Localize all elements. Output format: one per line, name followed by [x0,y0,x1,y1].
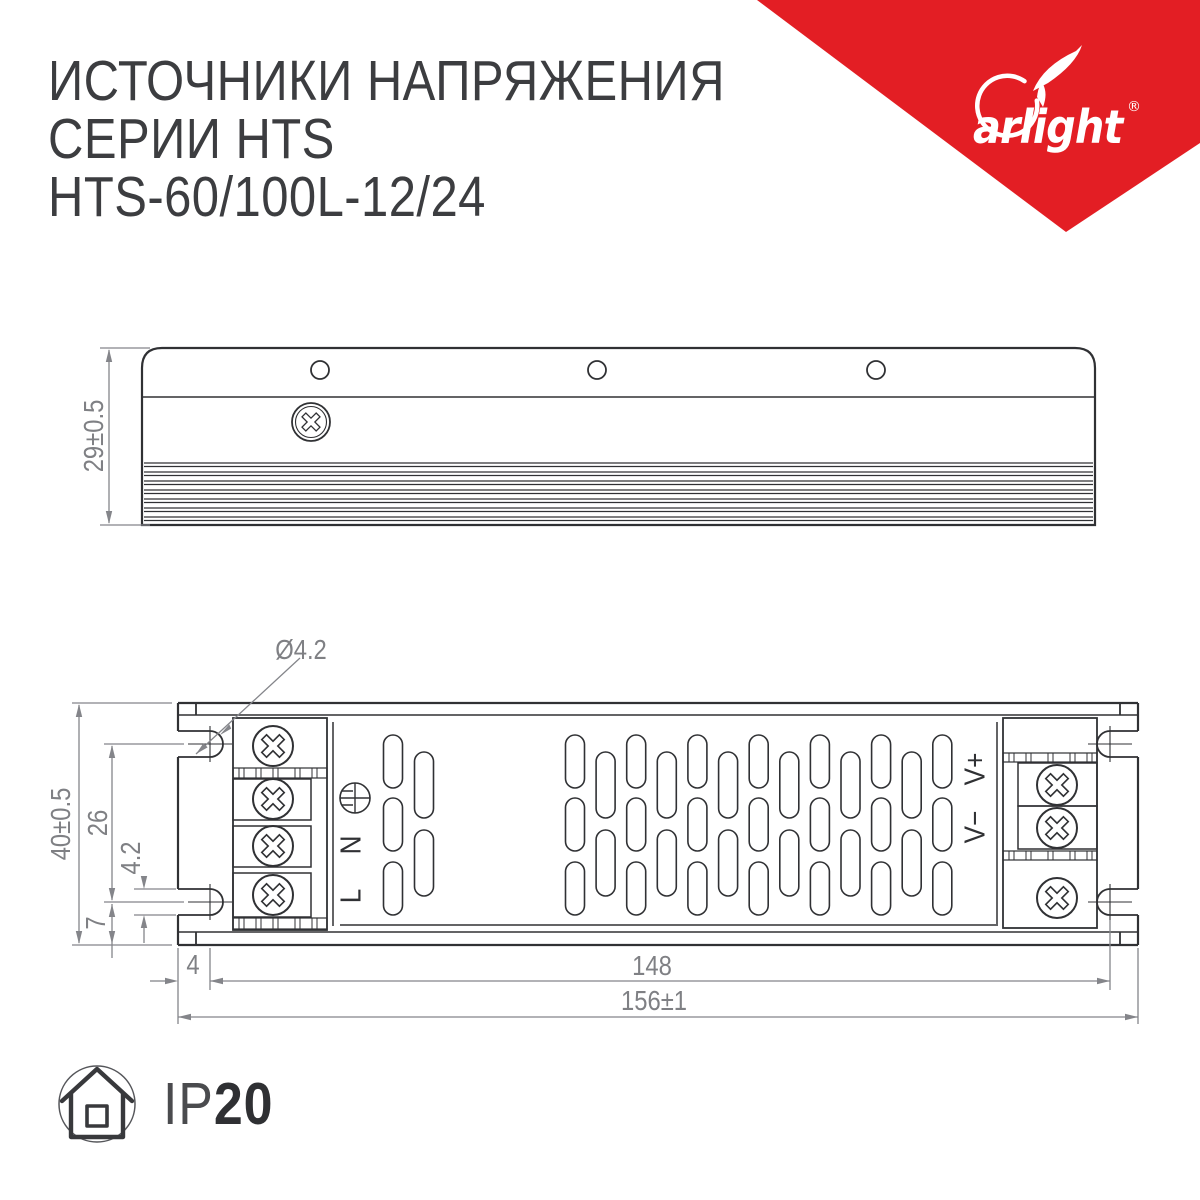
dim-7: 7 [80,916,112,929]
terminal-screw-icon [253,726,293,766]
dim-4: 4 [186,949,199,981]
dim-4-2: 4.2 [115,841,147,874]
terminal-screw-icon [253,779,293,819]
terminal-screw-icon [253,875,293,915]
terminal-screw-icon [1037,878,1077,918]
ground-screw-icon [340,783,370,813]
title-line-1: ИСТОЧНИКИ НАПРЯЖЕНИЯ [48,52,725,110]
terminal-label-l: L [336,889,369,904]
vent-grid [384,735,952,915]
terminal-label-n: N [336,836,369,855]
terminal-screw-icon [1037,765,1077,805]
ip-prefix: IP [163,1071,214,1137]
side-view-drawing [142,348,1095,525]
ip-value: 20 [214,1071,274,1137]
dimension-annotations [72,348,1138,1024]
dim-148: 148 [632,950,672,982]
case-hole [588,361,606,379]
case-screw-icon [292,403,330,441]
terminal-screw-icon [253,826,293,866]
ip-badge [59,1066,135,1142]
case-hole [311,361,329,379]
hole-diameter-label: Ø4.2 [275,634,327,666]
brand-wordmark: arlight [973,100,1122,154]
model-number: HTS-60/100L-12/24 [48,168,725,226]
terminal-label-vminus: V− [960,811,993,844]
terminal-screw-icon [1037,808,1077,848]
house-icon [62,1069,132,1137]
top-view-drawing [178,703,1138,945]
heatsink-fins [144,463,1093,521]
input-terminal-block [233,718,327,930]
ip-rating: IP20 [163,1070,273,1138]
dim-29: 29±0.5 [78,400,110,473]
dim-26: 26 [82,810,114,836]
title-line-2: СЕРИИ HTS [48,110,725,168]
dim-156: 156±1 [621,985,687,1017]
dim-40: 40±0.5 [45,788,77,861]
page-title: ИСТОЧНИКИ НАПРЯЖЕНИЯ СЕРИИ HTS HTS-60/10… [48,52,725,226]
datasheet-page: ИСТОЧНИКИ НАПРЯЖЕНИЯ СЕРИИ HTS HTS-60/10… [0,0,1200,1200]
output-terminal-block [1003,718,1097,928]
registered-mark: ® [1127,99,1141,115]
terminal-label-vplus: V+ [960,753,993,786]
case-hole [867,361,885,379]
